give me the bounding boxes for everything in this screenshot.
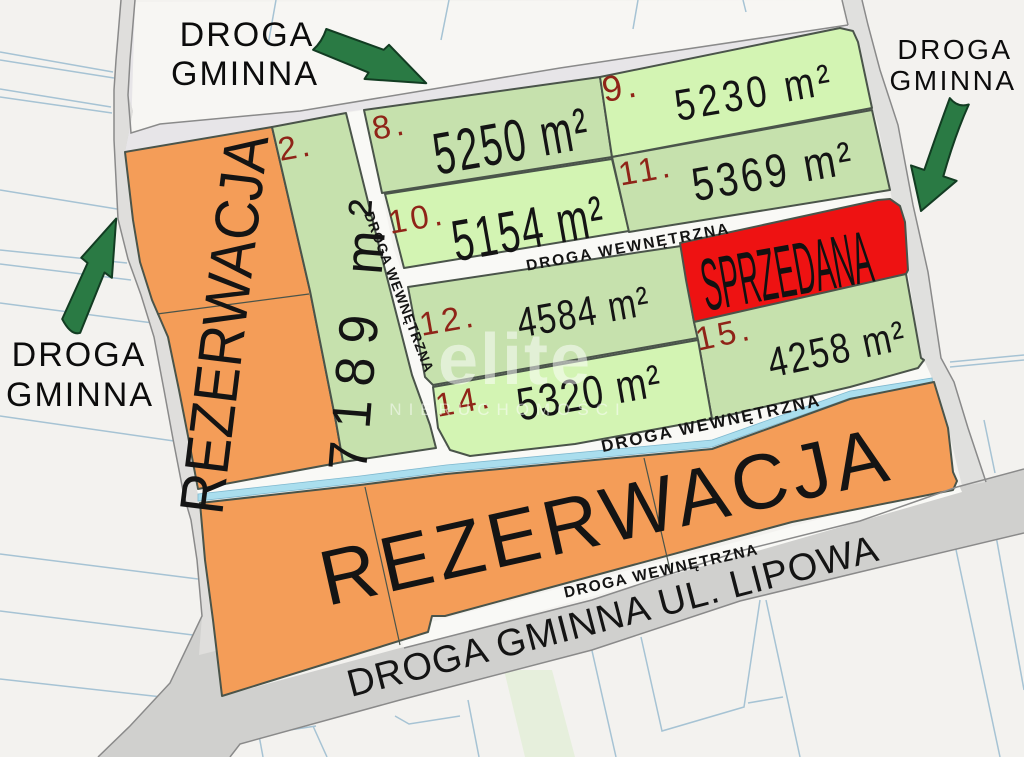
svg-text:DROGA: DROGA [12,336,147,374]
svg-text:NIERUCHOMOŚCI: NIERUCHOMOŚCI [389,400,626,419]
svg-text:2.: 2. [275,125,316,168]
svg-text:8.: 8. [369,104,410,147]
svg-text:GMINNA: GMINNA [890,65,1017,96]
svg-text:GMINNA: GMINNA [171,55,319,93]
svg-text:elite: elite [438,320,592,400]
svg-text:9.: 9. [599,63,644,110]
svg-text:DROGA: DROGA [897,34,1012,65]
svg-text:GMINNA: GMINNA [6,376,154,414]
svg-text:DROGA: DROGA [180,16,315,54]
